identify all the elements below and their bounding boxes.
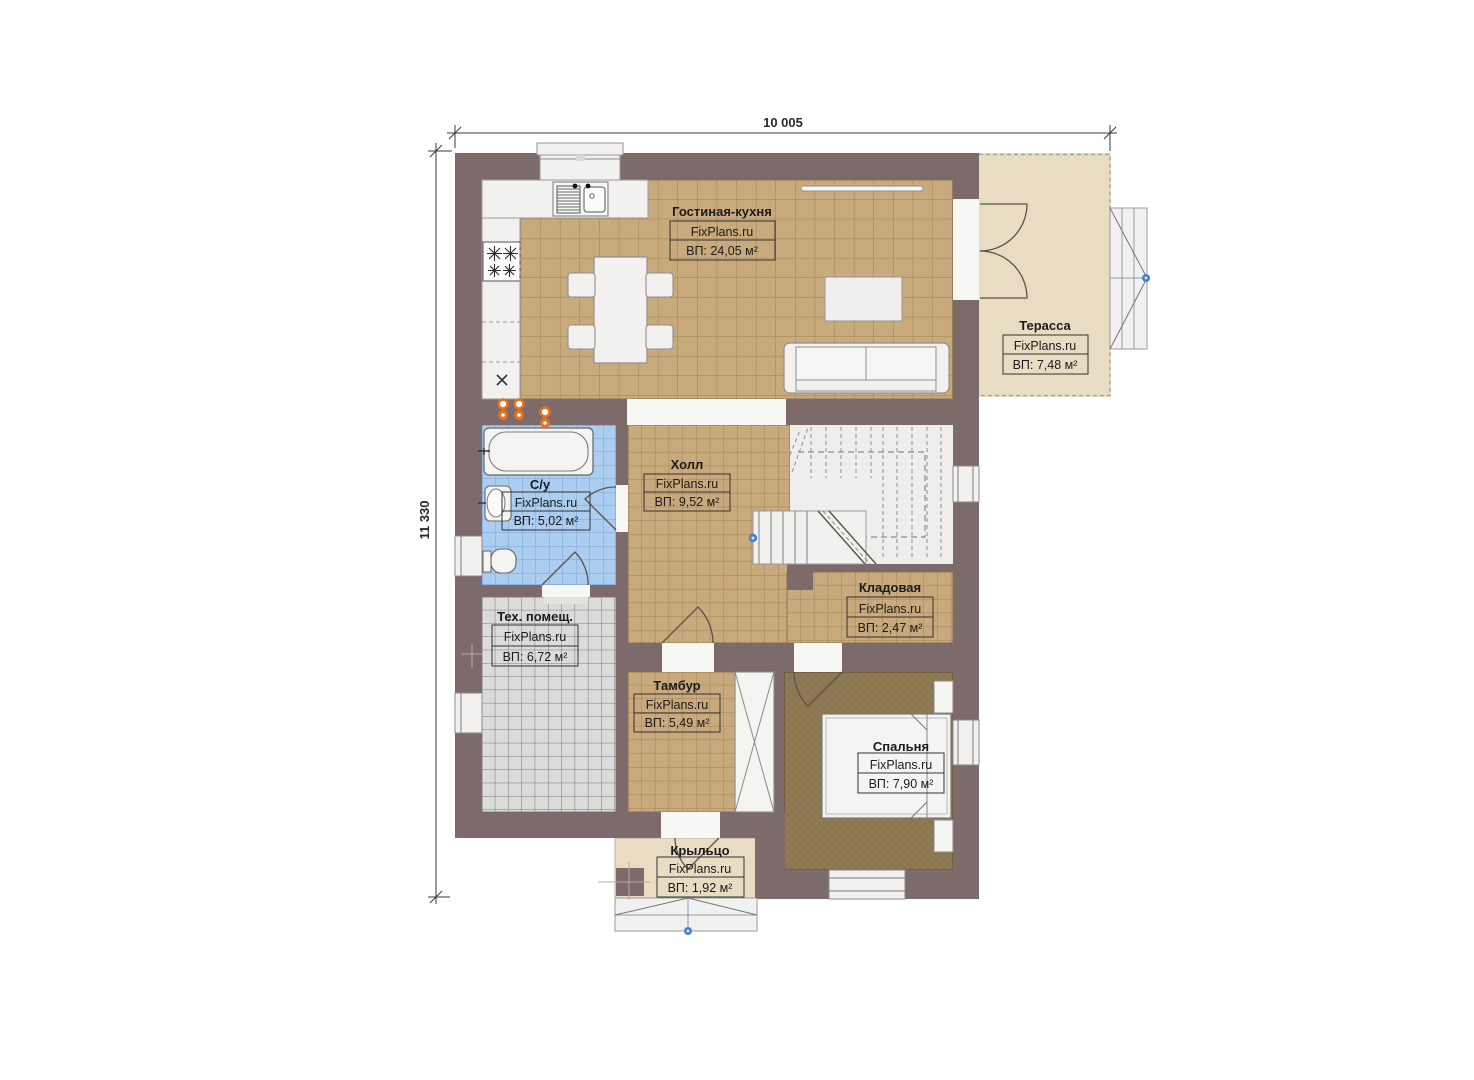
svg-text:FixPlans.ru: FixPlans.ru — [1014, 339, 1077, 353]
svg-text:Тамбур: Тамбур — [653, 678, 700, 693]
svg-text:FixPlans.ru: FixPlans.ru — [504, 630, 567, 644]
svg-text:FixPlans.ru: FixPlans.ru — [691, 225, 754, 239]
svg-text:FixPlans.ru: FixPlans.ru — [656, 477, 719, 491]
svg-text:ВП: 7,90 м²: ВП: 7,90 м² — [869, 777, 934, 791]
svg-text:FixPlans.ru: FixPlans.ru — [859, 602, 922, 616]
svg-text:ВП: 7,48 м²: ВП: 7,48 м² — [1013, 358, 1078, 372]
svg-text:ВП: 9,52 м²: ВП: 9,52 м² — [655, 495, 720, 509]
svg-text:ВП: 5,02 м²: ВП: 5,02 м² — [514, 514, 579, 528]
svg-text:FixPlans.ru: FixPlans.ru — [646, 698, 709, 712]
svg-text:Кладовая: Кладовая — [859, 580, 921, 595]
svg-text:FixPlans.ru: FixPlans.ru — [515, 496, 578, 510]
svg-text:Холл: Холл — [671, 457, 704, 472]
svg-text:Тех. помещ.: Тех. помещ. — [497, 609, 573, 624]
svg-text:С/у: С/у — [530, 477, 551, 492]
svg-text:Крыльцо: Крыльцо — [670, 843, 729, 858]
svg-text:FixPlans.ru: FixPlans.ru — [669, 862, 732, 876]
svg-text:FixPlans.ru: FixPlans.ru — [870, 758, 933, 772]
svg-text:Спальня: Спальня — [873, 739, 929, 754]
svg-text:ВП: 24,05 м²: ВП: 24,05 м² — [686, 244, 758, 258]
svg-text:ВП: 1,92 м²: ВП: 1,92 м² — [668, 881, 733, 895]
svg-text:Терасса: Терасса — [1019, 318, 1071, 333]
svg-text:ВП: 6,72 м²: ВП: 6,72 м² — [503, 650, 568, 664]
svg-text:ВП: 5,49 м²: ВП: 5,49 м² — [645, 716, 710, 730]
svg-text:Гостиная-кухня: Гостиная-кухня — [672, 204, 772, 219]
svg-text:11 330: 11 330 — [417, 500, 432, 539]
svg-text:10 005: 10 005 — [763, 115, 803, 130]
svg-text:ВП: 2,47 м²: ВП: 2,47 м² — [858, 621, 923, 635]
